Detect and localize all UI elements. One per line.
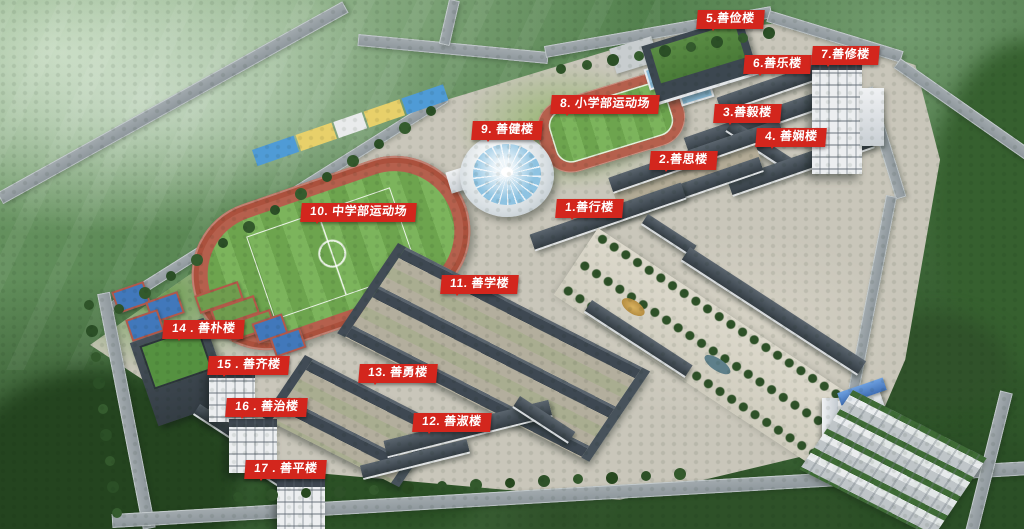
building-marker-16: 16 . 善治楼: [225, 398, 308, 417]
building-marker-10: 10. 中学部运动场: [300, 203, 417, 222]
building-marker-6: 6.善乐楼: [743, 55, 811, 74]
building-marker-7: 7.善修楼: [811, 46, 879, 65]
building-marker-8: 8. 小学部运动场: [550, 95, 659, 114]
building-marker-15: 15 . 善齐楼: [207, 356, 290, 375]
building-marker-17: 17 . 善平楼: [244, 460, 327, 479]
campus-aerial-map: 1.善行楼2.善思楼3.善毅楼4. 善娴楼5.善俭楼6.善乐楼7.善修楼8. 小…: [0, 0, 1024, 529]
building-marker-1: 1.善行楼: [555, 199, 623, 218]
building-labels: 1.善行楼2.善思楼3.善毅楼4. 善娴楼5.善俭楼6.善乐楼7.善修楼8. 小…: [0, 0, 1024, 529]
building-marker-11: 11. 善学楼: [440, 275, 519, 294]
building-marker-14: 14 . 善朴楼: [162, 320, 245, 339]
building-marker-13: 13. 善勇楼: [358, 364, 437, 383]
building-marker-2: 2.善思楼: [649, 151, 717, 170]
building-marker-3: 3.善毅楼: [713, 104, 781, 123]
building-marker-9: 9. 善健楼: [471, 121, 543, 140]
building-marker-5: 5.善俭楼: [696, 10, 764, 29]
building-marker-4: 4. 善娴楼: [755, 128, 827, 147]
building-marker-12: 12. 善淑楼: [412, 413, 491, 432]
